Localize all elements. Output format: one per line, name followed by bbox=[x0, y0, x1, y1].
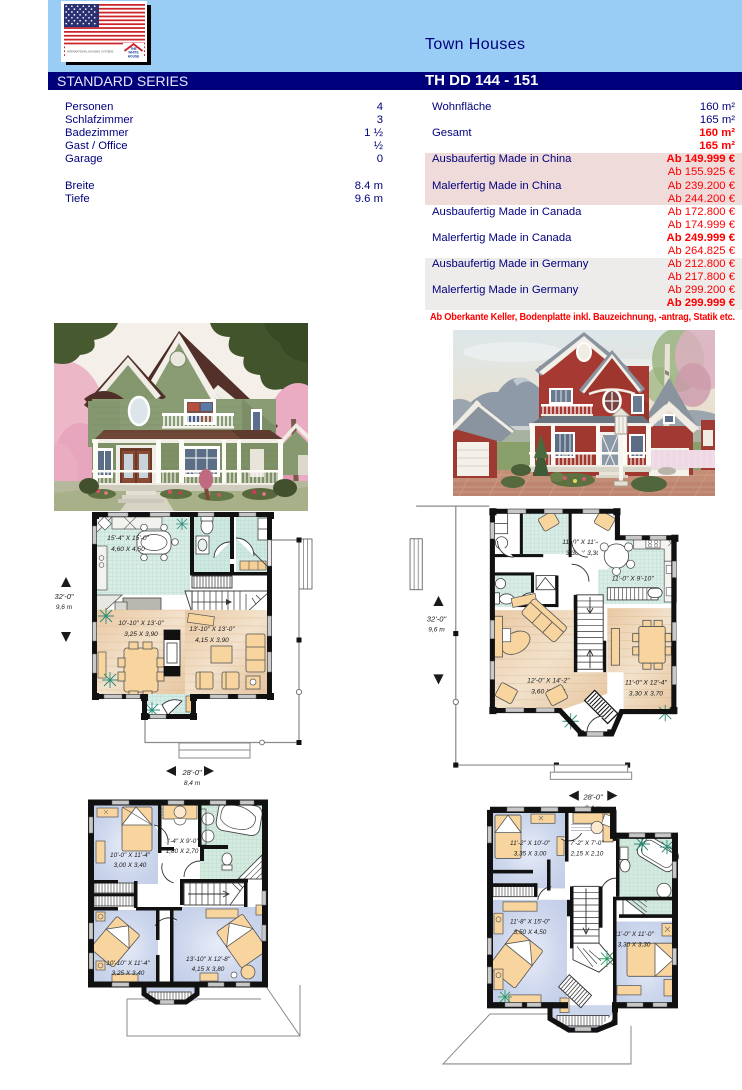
svg-text:10'-0" X 11'-4": 10'-0" X 11'-4" bbox=[110, 852, 151, 859]
svg-text:12'-0" X 14'-2": 12'-0" X 14'-2" bbox=[527, 677, 570, 684]
svg-text:7'-2" X 7'-0": 7'-2" X 7'-0" bbox=[570, 840, 604, 847]
svg-text:13'-10" X 13'-0": 13'-10" X 13'-0" bbox=[189, 626, 235, 633]
svg-text:28'-0": 28'-0" bbox=[181, 768, 201, 777]
svg-text:9,6 m: 9,6 m bbox=[56, 604, 73, 611]
svg-text:32'-0": 32'-0" bbox=[54, 592, 73, 601]
svg-text:4,15 X 3,90: 4,15 X 3,90 bbox=[195, 637, 229, 644]
svg-text:11'-0" X 11'-0": 11'-0" X 11'-0" bbox=[614, 931, 654, 938]
svg-text:11'-2" X 10'-0": 11'-2" X 10'-0" bbox=[510, 840, 551, 847]
svg-text:15'-4" X 15'-0": 15'-4" X 15'-0" bbox=[107, 535, 149, 542]
svg-text:9,6 m: 9,6 m bbox=[428, 627, 445, 634]
svg-text:11'-8" X 15'-0": 11'-8" X 15'-0" bbox=[510, 918, 551, 925]
svg-text:3,25 X 3,90: 3,25 X 3,90 bbox=[124, 631, 158, 638]
svg-text:4,60 X 4,50: 4,60 X 4,50 bbox=[111, 546, 145, 553]
svg-text:3,35 X 3,00: 3,35 X 3,00 bbox=[514, 850, 547, 857]
svg-text:11'-0" X 12'-4": 11'-0" X 12'-4" bbox=[625, 680, 667, 687]
svg-text:32'-0": 32'-0" bbox=[427, 614, 447, 623]
svg-text:3,25 X 3,40: 3,25 X 3,40 bbox=[112, 970, 145, 977]
svg-text:13'-10" X 12'-8": 13'-10" X 12'-8" bbox=[186, 956, 231, 963]
svg-text:8,4 m: 8,4 m bbox=[184, 780, 201, 787]
svg-text:11'-0" X 9'-10": 11'-0" X 9'-10" bbox=[612, 576, 654, 583]
svg-text:3,30 X 3,30: 3,30 X 3,30 bbox=[618, 941, 651, 948]
svg-text:10'-10" X 11'-4": 10'-10" X 11'-4" bbox=[106, 960, 150, 967]
svg-text:3,30 X 3,70: 3,30 X 3,70 bbox=[629, 691, 664, 698]
svg-text:3,00 X 3,40: 3,00 X 3,40 bbox=[114, 862, 147, 869]
svg-text:INTERNATIONAL HOUSING SYSTEMS: INTERNATIONAL HOUSING SYSTEMS bbox=[67, 49, 114, 53]
svg-text:11'-0" X 11'-0": 11'-0" X 11'-0" bbox=[562, 539, 604, 546]
svg-text:10'-10" X 13'-0": 10'-10" X 13'-0" bbox=[118, 620, 164, 627]
svg-text:4,15 X 3,80: 4,15 X 3,80 bbox=[192, 966, 225, 973]
svg-text:6'-4" X 9'-0": 6'-4" X 9'-0" bbox=[165, 838, 199, 845]
svg-text:3,50 X 4,50: 3,50 X 4,50 bbox=[514, 929, 547, 936]
svg-text:HOUSE: HOUSE bbox=[128, 54, 139, 58]
svg-text:2,15 X 2,10: 2,15 X 2,10 bbox=[570, 850, 604, 857]
